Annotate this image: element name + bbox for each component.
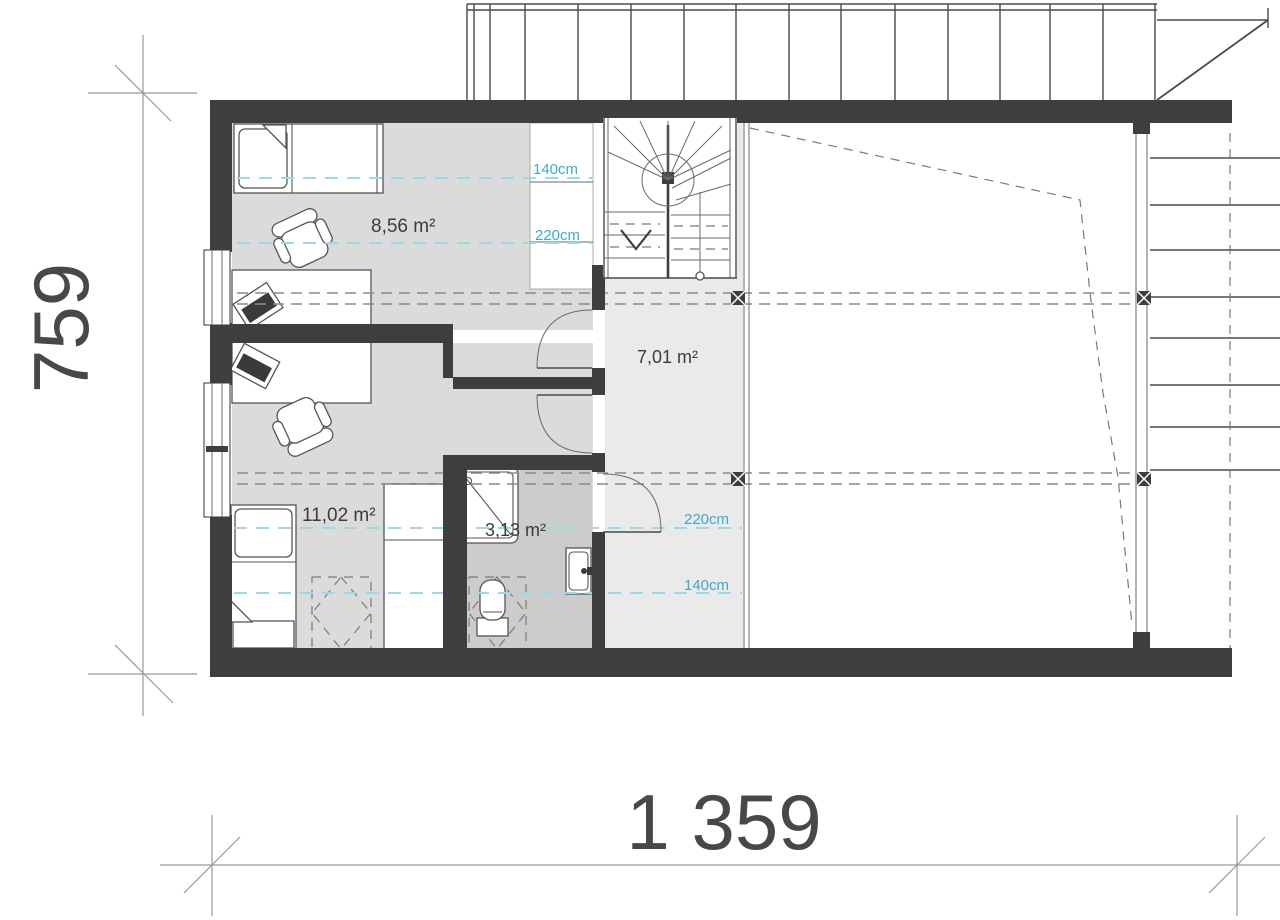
window-bottom-bedroom [204, 383, 230, 517]
height-label-140-bottom: 140cm [684, 577, 729, 594]
roof-band [467, 4, 1268, 100]
post-marker [731, 472, 745, 486]
windows [204, 250, 230, 517]
wall-hall [592, 368, 605, 395]
knee-storage-strip [530, 123, 593, 289]
roof-corner-diagonal [1157, 20, 1268, 100]
floor-plan-canvas: 140cm 220cm 220cm 140cm [0, 0, 1280, 920]
wall-left [210, 515, 232, 677]
post-marker [1137, 472, 1151, 486]
roof-outline-dashed [750, 128, 1132, 625]
stair-post [696, 272, 704, 280]
area-label-hall: 7,01 m² [637, 347, 698, 367]
bed-top [234, 124, 383, 193]
area-label-top-bedroom: 8,56 m² [371, 216, 435, 237]
floor-plan-drawing: 140cm 220cm 220cm 140cm [0, 0, 1280, 920]
wall-hall [592, 532, 605, 648]
sink [566, 548, 592, 594]
height-label-220-top: 220cm [535, 227, 580, 244]
wardrobe [384, 484, 444, 652]
bed-bottom [231, 505, 296, 649]
dimension-height: 759 [17, 35, 197, 716]
post-markers [731, 291, 1151, 486]
window-top-bedroom [204, 250, 230, 325]
wall-bottom [210, 648, 1232, 677]
area-label-bottom-bedroom: 11,02 m² [302, 505, 376, 526]
dimension-width-value: 1 359 [626, 778, 821, 866]
staircase [603, 118, 737, 280]
height-label-140-top: 140cm [533, 161, 578, 178]
dimension-width: 1 359 [160, 778, 1280, 916]
wall-left [210, 100, 232, 252]
height-label-220-bottom: 220cm [684, 511, 729, 528]
wall-left [210, 323, 232, 385]
wall-bathroom-left [443, 455, 467, 648]
post-marker [731, 291, 745, 305]
wall-bathroom-top [443, 455, 605, 470]
wall-divider [230, 324, 453, 343]
wall-divider [443, 343, 453, 378]
dimension-height-value: 759 [17, 263, 105, 393]
post-marker [1137, 291, 1151, 305]
area-label-bathroom: 3,13 m² [485, 520, 546, 540]
exterior-stair [1150, 133, 1280, 648]
wall-divider [453, 377, 592, 389]
void-and-gable [731, 118, 1151, 648]
